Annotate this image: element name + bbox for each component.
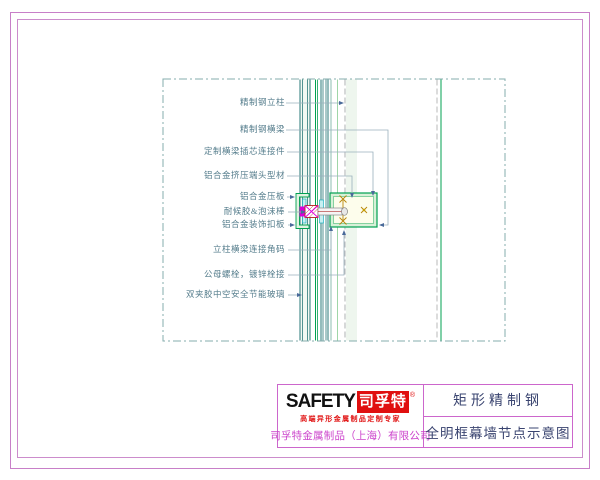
title-block: SAFETY 司孚特 ® 高端异形金属制品定制专家 司孚特金属制品（上海）有限公… [277, 384, 573, 448]
company-logo: SAFETY 司孚特 ® [286, 391, 415, 413]
logo-tagline: 高端异形金属制品定制专家 [300, 414, 401, 424]
callout-label: 双夹胶中空安全节能玻璃 [60, 289, 285, 300]
callout-label: 铝合金挤压端头型材 [60, 170, 285, 181]
cad-sheet: 精制钢立柱 精制钢横梁 定制横梁插芯连接件 铝合金挤压端头型材 铝合金压板 耐候… [0, 0, 600, 480]
callout-label: 立柱横梁连接角码 [60, 244, 285, 255]
company-name: 司孚特金属制品（上海）有限公司 [270, 428, 431, 443]
adjacent-mullion-lines [437, 80, 441, 341]
logo-brand-cn: 司孚特 [357, 391, 409, 413]
callout-label: 精制钢立柱 [60, 97, 285, 108]
callout-label: 精制钢横梁 [60, 124, 285, 135]
logo-brand-en: SAFETY [286, 392, 355, 412]
callout-label: 定制横梁插芯连接件 [60, 146, 285, 157]
callout-label: 铝合金压板 [60, 191, 285, 202]
title-block-title-cells: 矩形精制钢 全明框幕墙节点示意图 [424, 385, 572, 447]
drawing-title: 全明框幕墙节点示意图 [424, 417, 572, 448]
title-block-company-cell: SAFETY 司孚特 ® 高端异形金属制品定制专家 司孚特金属制品（上海）有限公… [278, 385, 424, 447]
registered-trademark-icon: ® [410, 386, 415, 406]
callout-label: 铝合金装饰扣板 [60, 219, 285, 230]
callout-label: 耐候胶&泡沫棒 [60, 206, 285, 217]
callout-label: 公母螺栓，镀锌栓接 [60, 269, 285, 280]
beam-bolt-dot [363, 209, 366, 212]
product-name: 矩形精制钢 [424, 385, 572, 417]
